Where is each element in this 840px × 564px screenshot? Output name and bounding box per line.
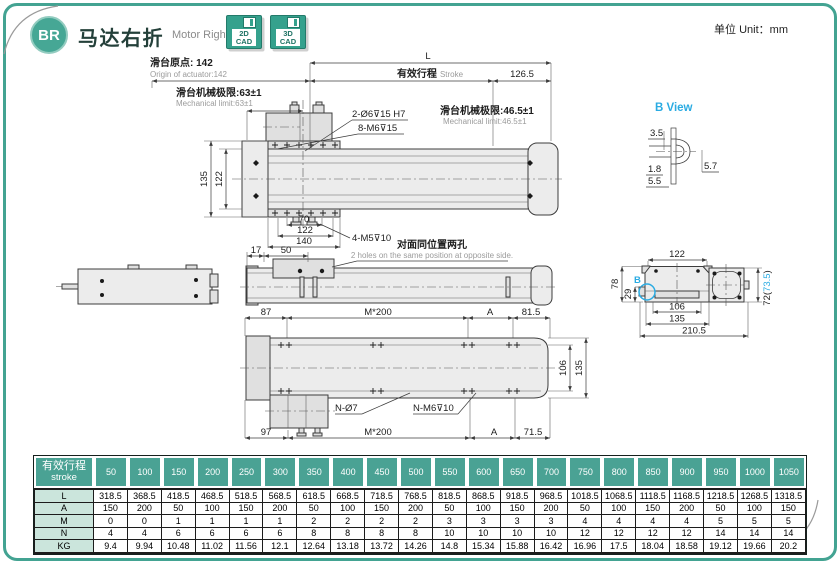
motor-side-view [56, 265, 218, 304]
stroke-column-header: 100 [128, 456, 162, 488]
table-cell: 1018.5 [568, 488, 602, 503]
table-cell: 15.88 [501, 540, 535, 554]
table-cell: 1 [263, 515, 297, 528]
table-cell: 4 [602, 515, 636, 528]
table-cell: 200 [128, 503, 162, 516]
cad-2d-button[interactable]: 2DCAD [226, 15, 262, 49]
stroke-column-header: 450 [365, 456, 399, 488]
dim-3-5: 3.5 [650, 128, 663, 139]
table-cell: 19.12 [704, 540, 738, 554]
table-cell: 12.1 [263, 540, 297, 554]
table-cell: 6 [196, 528, 230, 541]
dim-126-5: 126.5 [510, 69, 534, 80]
table-cell: 150 [365, 503, 399, 516]
table-cell: 16.96 [568, 540, 602, 554]
dim-78: 78 [610, 279, 621, 290]
opposite-holes-note-en: 2 holes on the same position at opposite… [351, 251, 513, 260]
dim-1-8: 1.8 [648, 164, 661, 175]
table-cell: 6 [230, 528, 264, 541]
b-marker: B [634, 275, 641, 286]
holes-label-1: 2-Ø6⊽15 H7 [352, 109, 405, 120]
dim-122-h: 122 [297, 225, 313, 236]
table-cell: 9.4 [94, 540, 128, 554]
table-header-row: 有效行程stroke501001502002503003504004505005… [34, 456, 806, 488]
table-cell: 16.42 [535, 540, 569, 554]
floppy-shutter [243, 17, 256, 28]
stroke-header-cell: 有效行程stroke [34, 456, 94, 488]
table-cell: 100 [196, 503, 230, 516]
table-cell: 9.94 [128, 540, 162, 554]
table-cell: 10 [501, 528, 535, 541]
dim-106-section: 106 [669, 302, 685, 313]
table-cell: 11.02 [196, 540, 230, 554]
cad-3d-button[interactable]: 3DCAD [270, 15, 306, 49]
top-view: 滑台原点: 142 Origin of actuator:142 L 有效行程S… [150, 51, 562, 248]
table-cell: 19.66 [738, 540, 772, 554]
stroke-spec-table: 有效行程stroke501001502002503003504004505005… [33, 455, 807, 555]
holes-label-2: 8-M6⊽15 [358, 123, 397, 134]
table-cell: 200 [399, 503, 433, 516]
dim-72-73-5: 72(73.5) [762, 270, 773, 305]
table-cell: 14 [772, 528, 806, 541]
table-cell: 768.5 [399, 488, 433, 503]
table-row: A150200501001502005010015020050100150200… [34, 503, 806, 516]
origin-label-en: Origin of actuator:142 [150, 70, 227, 79]
cad-2d-label: 2DCAD [232, 29, 256, 46]
stroke-column-header: 150 [162, 456, 196, 488]
table-cell: 18.04 [636, 540, 670, 554]
stroke-column-header: 600 [467, 456, 501, 488]
stroke-column-header: 50 [94, 456, 128, 488]
dim-210-5: 210.5 [682, 326, 706, 337]
table-cell: 0 [94, 515, 128, 528]
stroke-column-header: 350 [297, 456, 331, 488]
floppy-shutter [287, 17, 300, 28]
table-cell: 868.5 [467, 488, 501, 503]
table-cell: 50 [704, 503, 738, 516]
table-cell: 50 [568, 503, 602, 516]
dim-5-5: 5.5 [648, 176, 661, 187]
table-cell: 14 [704, 528, 738, 541]
table-cell: 5 [772, 515, 806, 528]
table-cell: 12 [568, 528, 602, 541]
table-cell: 2 [399, 515, 433, 528]
b-view: B View 3.5 1.8 5.5 5.7 [646, 102, 719, 187]
dim-135-section: 135 [669, 314, 685, 325]
table-cell: 3 [467, 515, 501, 528]
table-cell: 20.2 [772, 540, 806, 554]
stroke-column-header: 400 [331, 456, 365, 488]
table-cell: 2 [297, 515, 331, 528]
limit-right-zh: 滑台机械极限:46.5±1 [440, 104, 534, 117]
dim-122-section: 122 [669, 249, 685, 260]
table-cell: 150 [94, 503, 128, 516]
table-cell: 100 [602, 503, 636, 516]
table-row: L318.5368.5418.5468.5518.5568.5618.5668.… [34, 488, 806, 503]
table-cell: 3 [501, 515, 535, 528]
table-cell: 6 [162, 528, 196, 541]
technical-drawing: 滑台原点: 142 Origin of actuator:142 L 有效行程S… [0, 50, 840, 455]
table-cell: 100 [738, 503, 772, 516]
table-row: N44666688881010101012121212141414 [34, 528, 806, 541]
dim-29: 29 [623, 289, 634, 300]
table-cell: 968.5 [535, 488, 569, 503]
dim-A-top: A [487, 307, 494, 318]
table-cell: 150 [230, 503, 264, 516]
table-cell: 1218.5 [704, 488, 738, 503]
table-cell: 12 [602, 528, 636, 541]
table-cell: 8 [297, 528, 331, 541]
limit-left-en: Mechanical limit:63±1 [176, 99, 253, 108]
table-cell: 818.5 [433, 488, 467, 503]
dim-106-bottom: 106 [558, 360, 569, 376]
holes-n-m6: N-M6⊽10 [413, 403, 454, 414]
unit-label: 单位 Unit：mm [714, 21, 788, 37]
limit-right-en: Mechanical limit:46.5±1 [443, 117, 527, 126]
table-cell: 8 [365, 528, 399, 541]
table-cell: 50 [162, 503, 196, 516]
dim-122-v: 122 [214, 171, 225, 187]
table-cell: 10 [535, 528, 569, 541]
table-cell: 12.64 [297, 540, 331, 554]
table-cell: 568.5 [263, 488, 297, 503]
table-cell: 6 [263, 528, 297, 541]
table-cell: 468.5 [196, 488, 230, 503]
limit-left-zh: 滑台机械极限:63±1 [176, 86, 262, 99]
catalog-page: BR 马达右折 Motor Right Side 2DCAD 3DCAD 单位 … [0, 0, 840, 564]
table-cell: 15.34 [467, 540, 501, 554]
table-cell: 1 [230, 515, 264, 528]
table-cell: 12 [636, 528, 670, 541]
table-cell: 518.5 [230, 488, 264, 503]
table-cell: 150 [636, 503, 670, 516]
page-title-zh: 马达右折 [78, 22, 164, 51]
stroke-column-header: 200 [196, 456, 230, 488]
table-cell: 1318.5 [772, 488, 806, 503]
table-cell: 618.5 [297, 488, 331, 503]
side-view: 17 50 对面同位置两孔 2 holes on the same positi… [240, 238, 558, 305]
stroke-label: 有效行程Stroke [397, 67, 464, 80]
dim-87: 87 [261, 307, 272, 318]
stroke-column-header: 700 [535, 456, 569, 488]
table-cell: 5 [704, 515, 738, 528]
table-cell: 318.5 [94, 488, 128, 503]
row-label-cell: N [34, 528, 94, 541]
dim-L: L [425, 51, 430, 62]
stroke-column-header: 750 [568, 456, 602, 488]
table-cell: 1168.5 [670, 488, 704, 503]
dim-135-v: 135 [199, 171, 210, 187]
table-cell: 14.8 [433, 540, 467, 554]
stroke-column-header: 950 [704, 456, 738, 488]
stroke-column-header: 800 [602, 456, 636, 488]
table-cell: 12 [670, 528, 704, 541]
row-label-cell: M [34, 515, 94, 528]
stroke-column-header: 1050 [772, 456, 806, 488]
table-cell: 50 [297, 503, 331, 516]
dim-17: 17 [251, 245, 262, 256]
dim-70: 70 [299, 214, 310, 225]
stroke-column-header: 500 [399, 456, 433, 488]
table-cell: 368.5 [128, 488, 162, 503]
cross-section-view: 122 B 78 [610, 249, 773, 338]
floppy-disk-icon: 3DCAD [270, 15, 306, 49]
dim-71-5: 71.5 [524, 427, 543, 438]
stroke-column-header: 650 [501, 456, 535, 488]
origin-label-zh: 滑台原点: 142 [150, 56, 213, 69]
stroke-column-header: 900 [670, 456, 704, 488]
dim-135-bottom: 135 [574, 360, 585, 376]
table-cell: 11.56 [230, 540, 264, 554]
stroke-column-header: 300 [263, 456, 297, 488]
row-label-cell: A [34, 503, 94, 516]
table-cell: 14.26 [399, 540, 433, 554]
table-cell: 1118.5 [636, 488, 670, 503]
table-cell: 14 [738, 528, 772, 541]
table-cell: 150 [772, 503, 806, 516]
table-cell: 100 [331, 503, 365, 516]
table-cell: 200 [535, 503, 569, 516]
stroke-column-header: 250 [230, 456, 264, 488]
dim-140: 140 [296, 236, 312, 247]
holes-n-o7: N-Ø7 [335, 403, 358, 414]
table-cell: 4 [670, 515, 704, 528]
table-cell: 1 [162, 515, 196, 528]
bottom-view: 87 M*200 A 81.5 N-Ø7 [240, 307, 589, 438]
table-cell: 3 [433, 515, 467, 528]
dim-m200-top: M*200 [364, 307, 391, 318]
table-cell: 2 [365, 515, 399, 528]
table-cell: 1268.5 [738, 488, 772, 503]
table-cell: 13.18 [331, 540, 365, 554]
row-label-cell: L [34, 488, 94, 503]
dim-81-5: 81.5 [522, 307, 541, 318]
table-cell: 918.5 [501, 488, 535, 503]
table-cell: 0 [128, 515, 162, 528]
dim-A-bottom: A [491, 427, 498, 438]
stroke-column-header: 850 [636, 456, 670, 488]
table-cell: 50 [433, 503, 467, 516]
table-cell: 200 [263, 503, 297, 516]
table-cell: 5 [738, 515, 772, 528]
table-cell: 668.5 [331, 488, 365, 503]
table-cell: 17.5 [602, 540, 636, 554]
dim-97: 97 [261, 427, 272, 438]
table-cell: 13.72 [365, 540, 399, 554]
table-cell: 100 [467, 503, 501, 516]
table-cell: 718.5 [365, 488, 399, 503]
cad-3d-label: 3DCAD [276, 29, 300, 46]
table-cell: 8 [331, 528, 365, 541]
table-cell: 4 [94, 528, 128, 541]
dim-5-7: 5.7 [704, 161, 717, 172]
table-cell: 2 [331, 515, 365, 528]
table-cell: 18.58 [670, 540, 704, 554]
dim-m200-bottom: M*200 [364, 427, 391, 438]
table-cell: 200 [670, 503, 704, 516]
table-cell: 10 [467, 528, 501, 541]
table-cell: 10 [433, 528, 467, 541]
series-badge: BR [30, 16, 68, 54]
table-cell: 4 [128, 528, 162, 541]
holes-label-3: 4-M5⊽10 [352, 233, 391, 244]
opposite-holes-note-zh: 对面同位置两孔 [397, 238, 467, 251]
table-cell: 1 [196, 515, 230, 528]
table-row: M001111222233334444555 [34, 515, 806, 528]
row-label-cell: KG [34, 540, 94, 554]
table-cell: 1068.5 [602, 488, 636, 503]
table-cell: 4 [568, 515, 602, 528]
floppy-disk-icon: 2DCAD [226, 15, 262, 49]
table-cell: 418.5 [162, 488, 196, 503]
table-cell: 3 [535, 515, 569, 528]
table-cell: 8 [399, 528, 433, 541]
stroke-column-header: 550 [433, 456, 467, 488]
table-cell: 4 [636, 515, 670, 528]
dim-50: 50 [281, 245, 292, 256]
table-cell: 150 [501, 503, 535, 516]
table-row: KG9.49.9410.4811.0211.5612.112.6413.1813… [34, 540, 806, 554]
table-cell: 10.48 [162, 540, 196, 554]
b-view-title: B View [655, 102, 693, 114]
stroke-column-header: 1000 [738, 456, 772, 488]
